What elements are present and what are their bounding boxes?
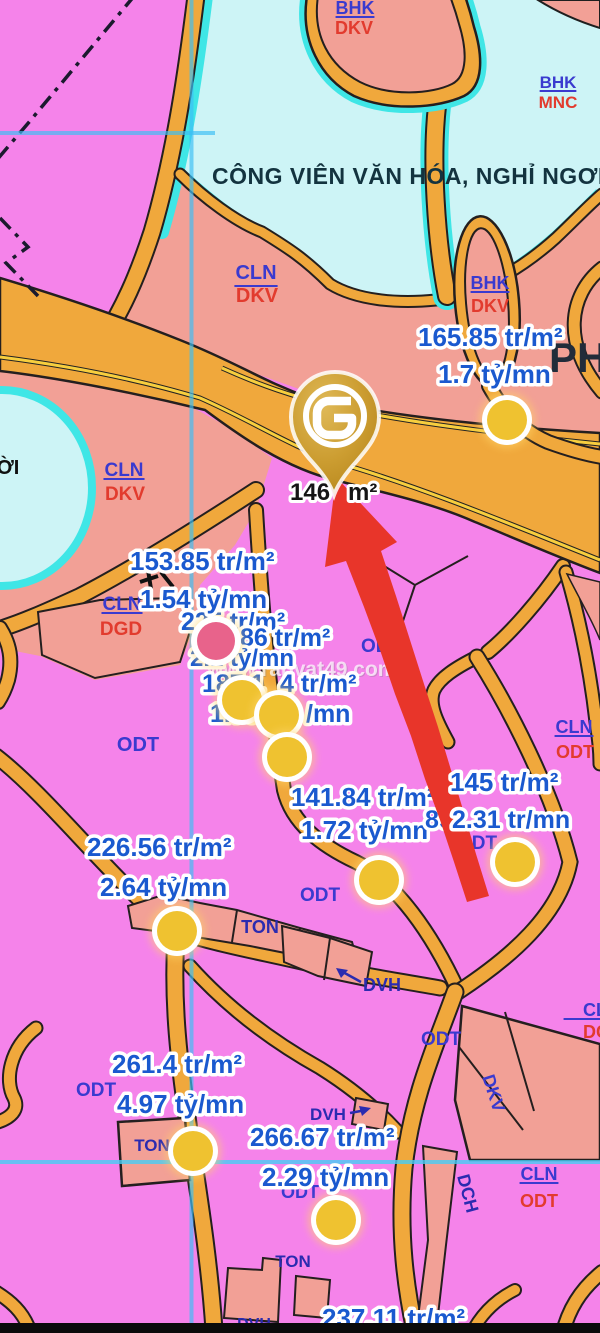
svg-text:DKV: DKV <box>105 484 145 505</box>
svg-text:1.54 tỷ/mn: 1.54 tỷ/mn <box>140 584 267 614</box>
svg-text:BHK: BHK <box>540 73 578 92</box>
svg-text:DKV: DKV <box>236 285 279 307</box>
svg-text:TON: TON <box>134 1136 170 1155</box>
svg-text:1.72 tỷ/mn: 1.72 tỷ/mn <box>301 815 428 845</box>
svg-text:ODT: ODT <box>556 742 594 762</box>
svg-text:ODT: ODT <box>76 1080 117 1101</box>
svg-text:TON: TON <box>241 917 279 937</box>
svg-text:ODT: ODT <box>520 1191 558 1211</box>
svg-text:CLN: CLN <box>104 460 143 481</box>
svg-text:2.29 tỷ/mn: 2.29 tỷ/mn <box>262 1162 389 1192</box>
svg-text:DVH: DVH <box>363 975 401 995</box>
svg-text:CLN: CLN <box>583 1000 600 1020</box>
svg-text:1.7 tỷ/mn: 1.7 tỷ/mn <box>438 359 551 389</box>
svg-text:2.64 tỷ/mn: 2.64 tỷ/mn <box>100 872 227 902</box>
svg-text:146: 146 <box>290 479 330 506</box>
svg-text:CLN: CLN <box>102 594 141 615</box>
svg-text:TON: TON <box>275 1252 311 1271</box>
svg-text:MNC: MNC <box>539 93 578 112</box>
svg-text:BHK: BHK <box>471 273 510 293</box>
svg-text:m²: m² <box>348 479 377 506</box>
svg-text:145 tr/m²: 145 tr/m² <box>450 767 559 797</box>
svg-text:226.56 tr/m²: 226.56 tr/m² <box>87 832 232 862</box>
svg-text:ỜI: ỜI <box>0 455 19 479</box>
svg-text:DGD: DGD <box>100 619 142 640</box>
svg-text:2.31 tr/mn: 2.31 tr/mn <box>452 806 570 834</box>
svg-text:141.84 tr/m²: 141.84 tr/m² <box>291 782 436 812</box>
svg-text:266.67 tr/m²: 266.67 tr/m² <box>250 1122 395 1152</box>
svg-text:DKV: DKV <box>335 18 373 38</box>
svg-text:CLN: CLN <box>556 717 593 737</box>
svg-text:BHK: BHK <box>336 0 375 18</box>
svg-text:153.85 tr/m²: 153.85 tr/m² <box>130 546 275 576</box>
svg-text:261.4 tr/m²: 261.4 tr/m² <box>112 1049 242 1079</box>
svg-text:ODT: ODT <box>117 734 159 756</box>
svg-text:4.97 tỷ/mn: 4.97 tỷ/mn <box>117 1089 244 1119</box>
svg-text:/mn: /mn <box>306 700 350 728</box>
svg-text:CÔNG VIÊN VĂN HÓA, NGHỈ NGƠI: CÔNG VIÊN VĂN HÓA, NGHỈ NGƠI <box>212 161 600 189</box>
svg-text:ODT: ODT <box>421 1029 462 1050</box>
svg-text:ODT: ODT <box>300 885 341 906</box>
svg-text:DKV: DKV <box>471 296 509 316</box>
svg-text:CLN: CLN <box>521 1164 558 1184</box>
svg-text:DC: DC <box>583 1022 600 1042</box>
svg-text:CLN: CLN <box>235 262 276 284</box>
svg-text:165.85 tr/m²: 165.85 tr/m² <box>418 322 563 352</box>
